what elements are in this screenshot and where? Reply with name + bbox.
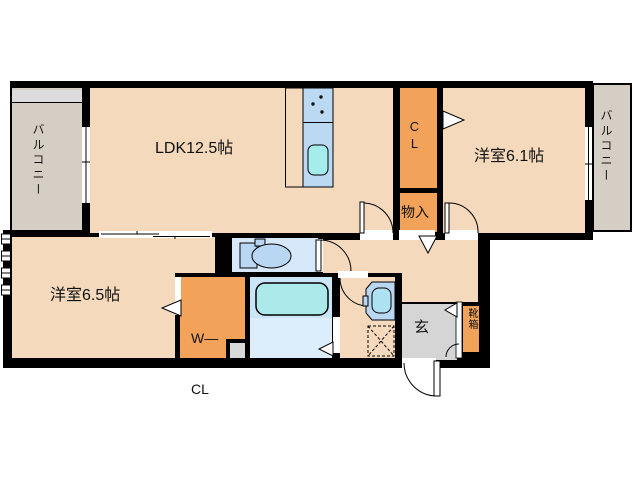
kitchen-sink [308, 145, 328, 175]
bedroom-west-label: 洋室6.5帖 [50, 288, 120, 305]
toilet-door-leaf [316, 240, 321, 271]
slit-windows-west-wall [2, 234, 11, 295]
sliding-door-ldk-bedroom-west [99, 231, 212, 239]
toilet-fixture [240, 239, 291, 268]
wcl-door-marker [162, 300, 181, 316]
washbasin [363, 282, 395, 320]
washing-machine-space [368, 326, 394, 356]
wcl-label-line2: CL [191, 381, 218, 398]
front-door-gap [402, 358, 436, 368]
bath-door-gap [333, 317, 340, 353]
bathtub [256, 283, 328, 315]
plan-overlay [0, 0, 638, 480]
entrance-label: 玄 [414, 320, 429, 336]
shoe-cabinet-label: 靴箱 [464, 308, 479, 330]
bedroom-east-door-gap [445, 230, 478, 240]
washroom-door-gap [338, 271, 368, 278]
front-door-leaf [434, 361, 440, 396]
window-ldk-balcony [82, 127, 90, 203]
bath-door-marker [319, 342, 333, 356]
ldk-door-gap [360, 230, 393, 240]
window-bedroom-east-balcony [585, 127, 592, 200]
balcony-left-label: バルコニー [30, 123, 47, 198]
balcony-right-label: バルコニー [598, 109, 615, 184]
ldk-door-leaf [360, 202, 364, 233]
walk-in-closet-label: W— CL [191, 296, 218, 432]
bedroom-east-door-swing [449, 203, 478, 233]
bedroom-east-label: 洋室6.1帖 [474, 149, 544, 166]
ldk-label: LDK12.5帖 [155, 141, 233, 158]
ldk-door-swing [364, 203, 393, 233]
storage-label: 物入 [401, 205, 429, 220]
closet-door-marker [443, 111, 464, 129]
bedroom-east-door-leaf [445, 203, 449, 233]
toilet-door-swing [321, 240, 351, 271]
wcl-label-line1: W— [191, 330, 218, 347]
shoe-door-marker [445, 303, 457, 317]
floor-plan: バルコニー LDK12.5帖 CL 洋室6.1帖 バルコニー 物入 洋室6.5帖… [0, 0, 638, 480]
closet-label: CL [407, 119, 422, 153]
storage-door-marker [419, 236, 437, 253]
